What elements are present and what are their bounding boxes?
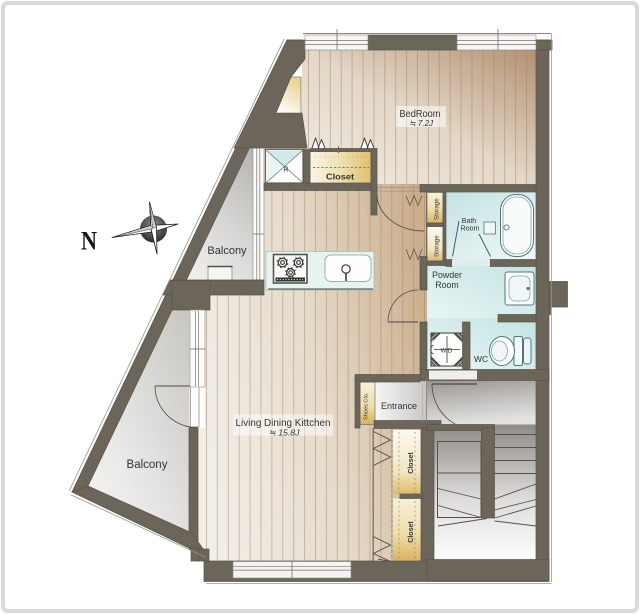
svg-text:Powder: Powder [432, 270, 462, 280]
svg-text:Shoes Clo.: Shoes Clo. [364, 392, 370, 420]
svg-text:Storage: Storage [434, 198, 441, 220]
svg-text:Room: Room [435, 280, 458, 290]
svg-text:Storage: Storage [434, 235, 441, 257]
svg-text:N: N [81, 227, 97, 256]
svg-text:Room: Room [461, 226, 480, 233]
svg-text:Balcony: Balcony [207, 245, 247, 257]
svg-text:Bath: Bath [462, 218, 477, 225]
svg-text:Entrance: Entrance [381, 401, 417, 411]
svg-text:Closet: Closet [408, 521, 415, 543]
svg-text:W/D: W/D [441, 349, 453, 355]
svg-text:WC: WC [474, 354, 488, 364]
svg-text:Closet: Closet [408, 452, 415, 474]
svg-text:R: R [284, 167, 289, 174]
svg-text:Balcony: Balcony [127, 459, 168, 471]
svg-text:Closet: Closet [326, 173, 354, 182]
svg-text:≒ 15.8J: ≒ 15.8J [269, 428, 301, 438]
svg-text:≒ 7.2J: ≒ 7.2J [409, 118, 434, 128]
